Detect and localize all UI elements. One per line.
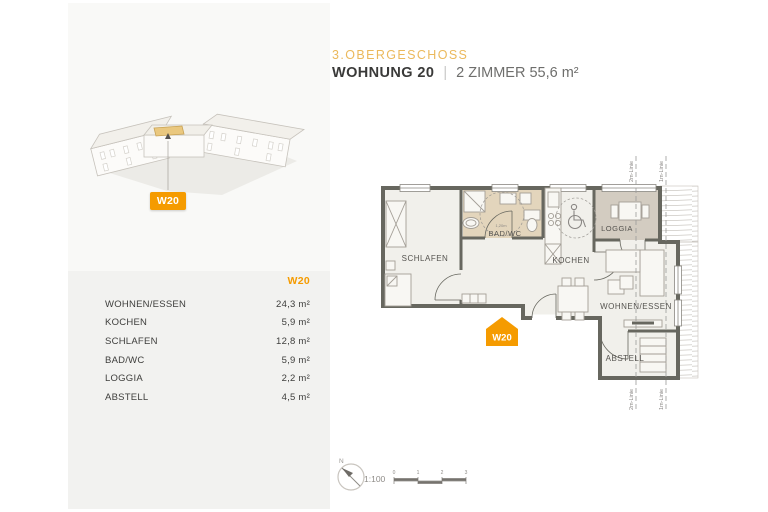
page-header: 3.OBERGESCHOSS WOHNUNG 20 | 2 ZIMMER 55,… (332, 48, 579, 81)
building-marker-label: W20 (157, 195, 179, 207)
area-table: W20 WOHNEN/ESSEN 24,3 m² KOCHEN 5,9 m² S… (105, 275, 310, 407)
scale-bar-graphic: 0 1 2 3 (391, 468, 473, 492)
sidebar-panel: W20 W20 WOHNEN/ESSEN 24,3 m² KOCHEN 5,9 … (68, 3, 330, 509)
table-row: WOHNEN/ESSEN 24,3 m² (105, 295, 310, 314)
apartment-title: WOHNUNG 20 | 2 ZIMMER 55,6 m² (332, 65, 579, 81)
room-label-loggia: LOGGIA (601, 224, 633, 233)
guide-label-1m-top: 1m-Linie (659, 161, 665, 182)
table-row: BAD/WC 5,9 m² (105, 351, 310, 370)
table-row: ABSTELL 4,5 m² (105, 388, 310, 407)
plan-marker-label: W20 (492, 333, 512, 344)
room-label: SCHLAFEN (105, 336, 158, 347)
scale-tick-2: 2 (441, 470, 444, 476)
scale-tick-1: 1 (417, 470, 420, 476)
room-label-kochen: KOCHEN (552, 256, 589, 265)
guide-label-2m-top: 2m-Linie (629, 161, 635, 182)
scale-bar: 1:100 0 1 2 3 (364, 468, 473, 492)
entry-door-gap (532, 315, 556, 322)
guide-label-2m-bottom: 2m-Linie (629, 389, 635, 410)
building-middle-block (144, 125, 212, 157)
guide-label-1m-bottom: 1m-Linie (659, 389, 665, 410)
building-marker-w20[interactable]: W20 (150, 192, 186, 210)
table-row: LOGGIA 2,2 m² (105, 369, 310, 388)
room-area-value: 4,5 m² (282, 392, 310, 403)
room-label: LOGGIA (105, 373, 143, 384)
room-label: BAD/WC (105, 355, 145, 366)
table-row: KOCHEN 5,9 m² (105, 314, 310, 333)
scale-tick-3: 3 (465, 470, 468, 476)
room-label-wohnen-essen: WOHNEN/ESSEN (600, 302, 672, 311)
floorplan: 1,20m 2m-Linie 1m-Linie 2m-Linie 1m-Lini… (372, 148, 707, 418)
room-area-value: 5,9 m² (282, 355, 310, 366)
room-area-value: 2,2 m² (282, 373, 310, 384)
highlighted-apartment (154, 126, 184, 136)
scale-tick-0: 0 (393, 470, 396, 476)
room-label: ABSTELL (105, 392, 148, 403)
table-row: SCHLAFEN 12,8 m² (105, 332, 310, 351)
area-table-header: W20 (105, 275, 310, 287)
room-area-value: 12,8 m² (276, 336, 310, 347)
north-label: N (339, 458, 344, 465)
room-area-value: 24,3 m² (276, 299, 310, 310)
room-label: KOCHEN (105, 317, 147, 328)
room-label-badwc: BAD/WC (489, 229, 522, 238)
radius-dimension-label: 1,20m (495, 223, 507, 228)
building-3d-render (82, 89, 312, 204)
room-label-schlafen: SCHLAFEN (402, 254, 449, 263)
title-separator: | (443, 65, 447, 81)
apartment-name: WOHNUNG 20 (332, 65, 434, 81)
room-label-abstell: ABSTELL (606, 354, 645, 363)
scale-ratio: 1:100 (364, 474, 385, 484)
floor-label: 3.OBERGESCHOSS (332, 48, 579, 62)
plan-marker-w20[interactable]: W20 (486, 317, 518, 346)
room-label: WOHNEN/ESSEN (105, 299, 186, 310)
apartment-details: 2 ZIMMER 55,6 m² (456, 65, 578, 81)
room-area-value: 5,9 m² (282, 317, 310, 328)
